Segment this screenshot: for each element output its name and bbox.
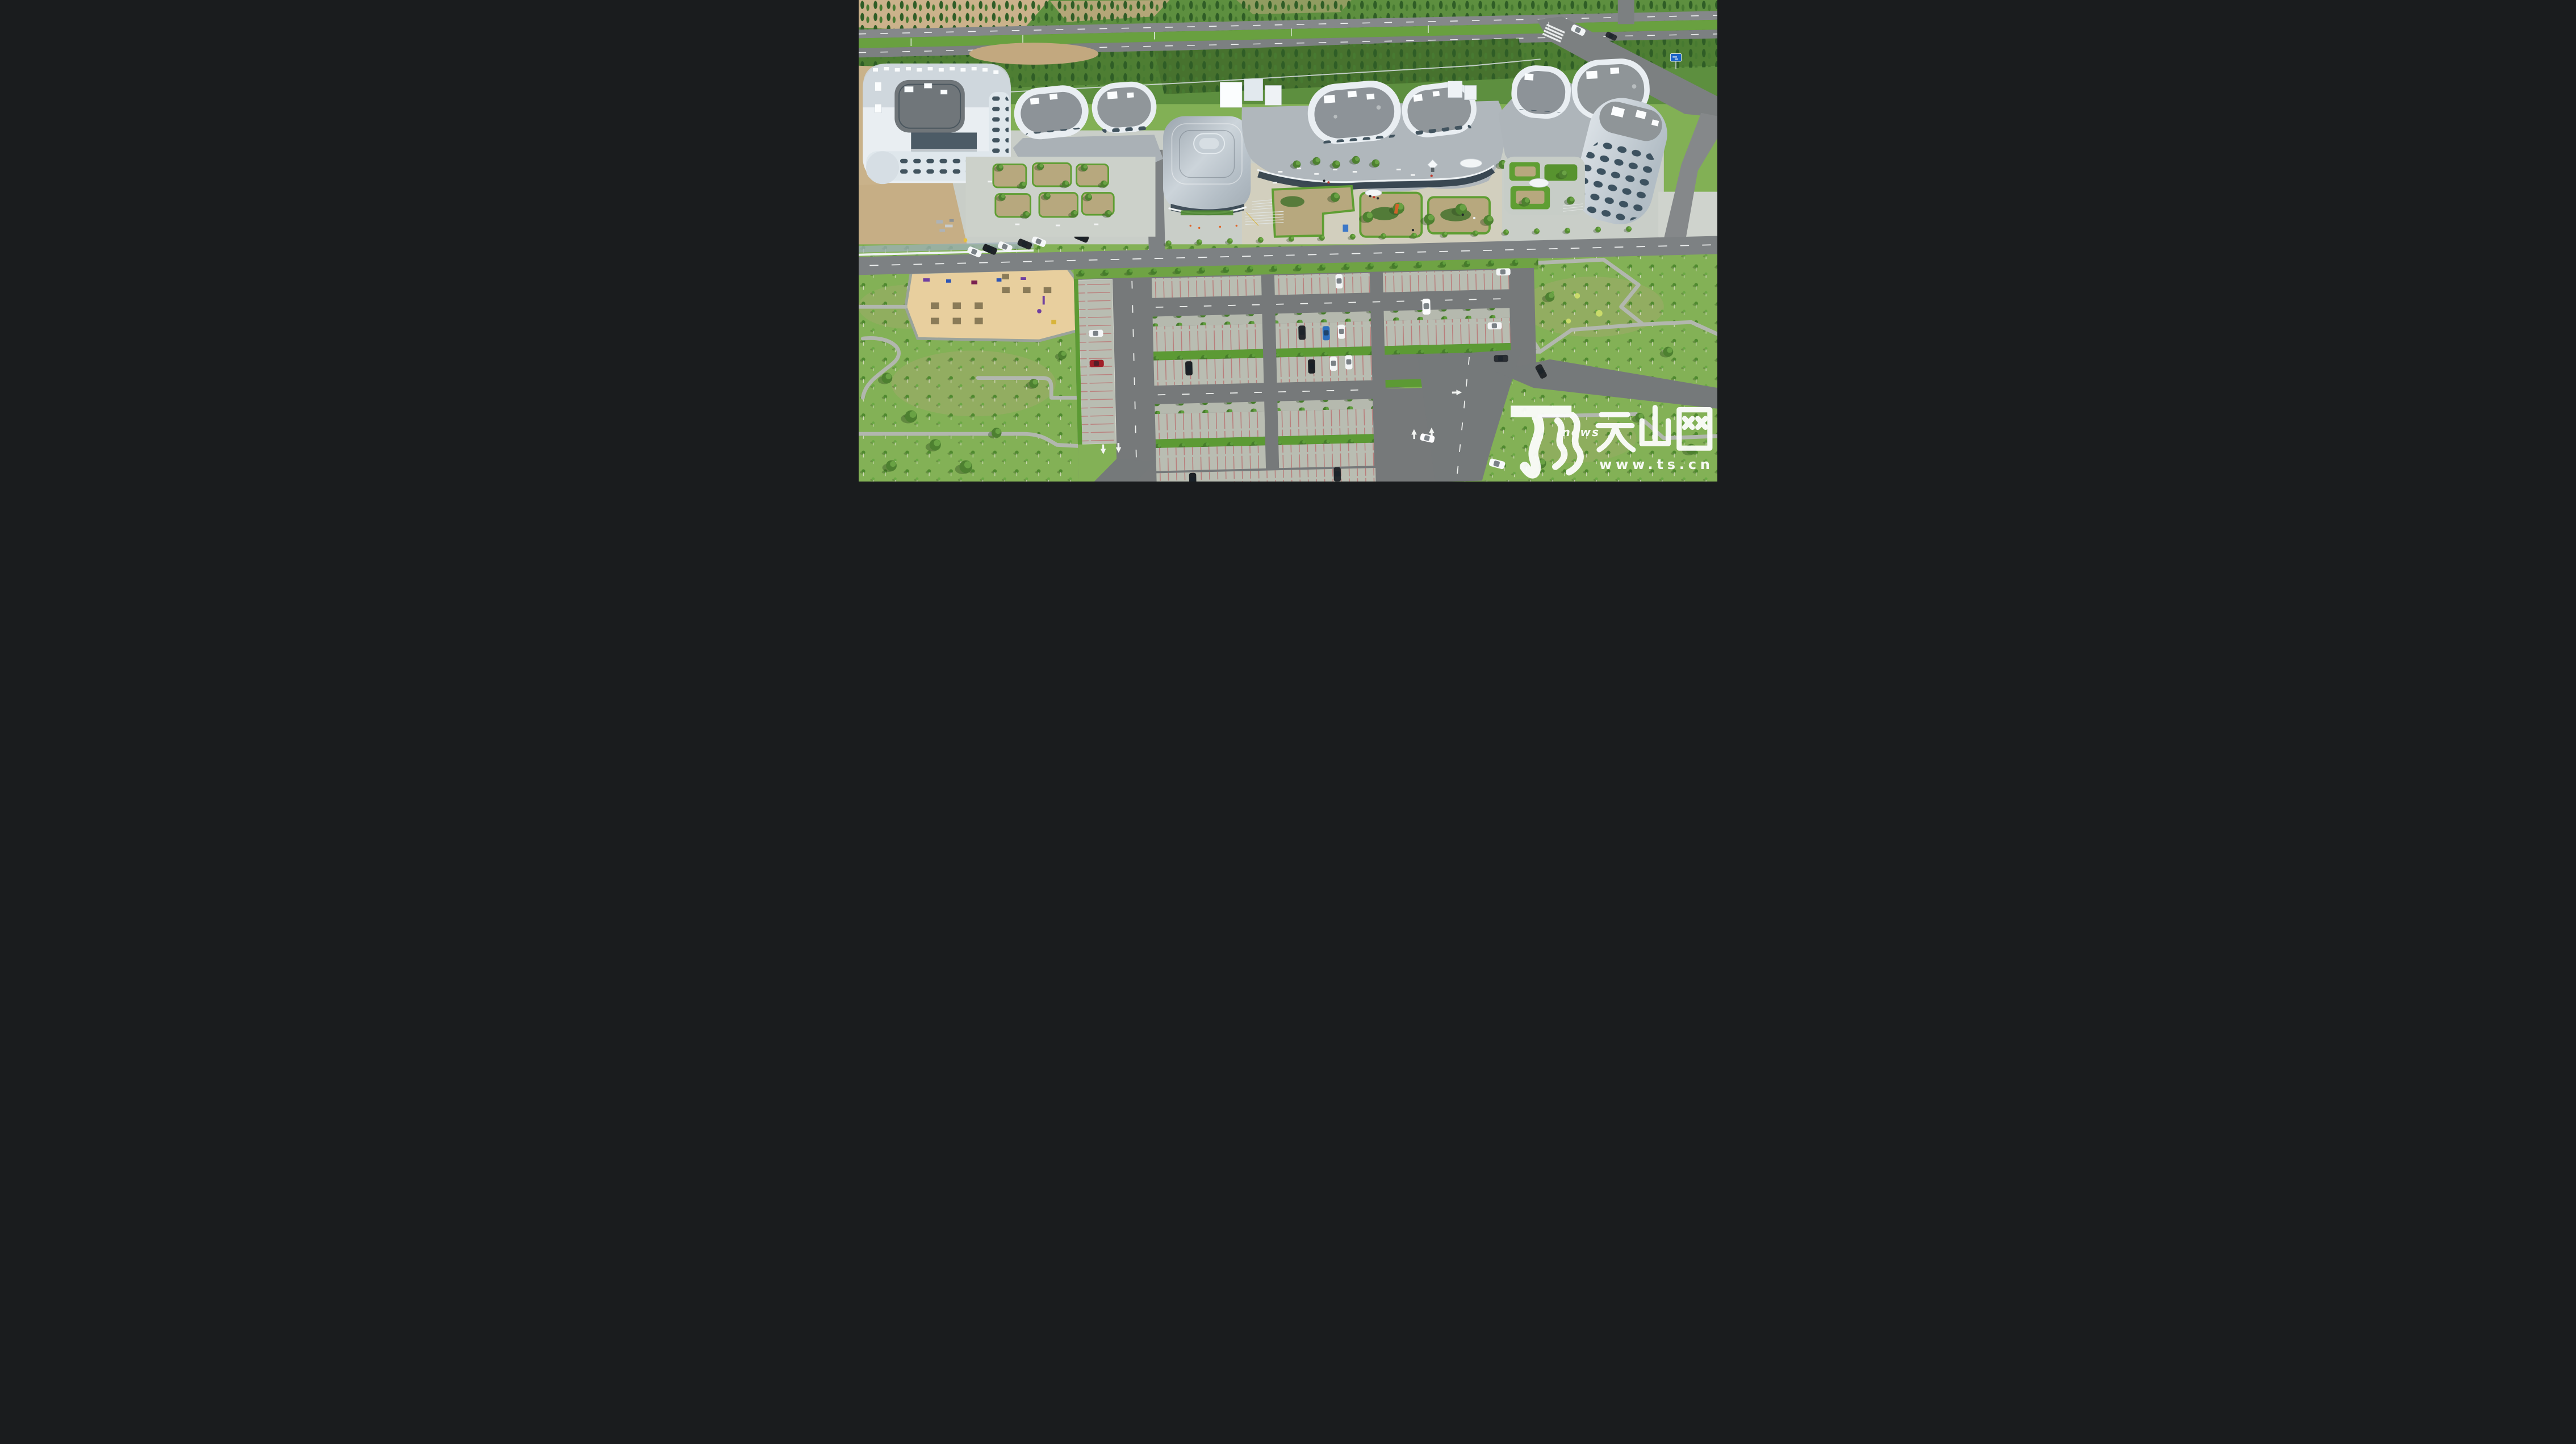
van-white [1422,299,1431,315]
car-black [1298,325,1306,340]
car-white [1338,325,1345,339]
car-white [1487,322,1502,329]
road-north-stub [1618,0,1634,24]
car-black [1189,473,1197,482]
watermark-news-label: news [1562,425,1600,439]
windows [991,95,1009,162]
car-white [1335,274,1343,288]
car-dark [1494,355,1508,362]
aerial-photo-canvas: news 天山网 www.ts.cn [859,0,1717,482]
car-blue [1323,326,1330,340]
dirt-lot-west [859,181,967,248]
watermark-site-url: www.ts.cn [1599,457,1714,472]
car-red [1089,360,1103,367]
aerial-photo-tianshan-campus: news 天山网 www.ts.cn [859,0,1717,482]
atrium-glass [911,132,977,151]
west-courtyard [966,157,1156,237]
sunken-garden [1504,157,1585,215]
shade-canopy [1365,190,1382,196]
dirt-mound [969,43,1099,65]
shade-canopy [1529,179,1549,187]
corner-cylinder [866,151,899,184]
shade-canopy [1460,159,1482,168]
car-white [1496,268,1510,275]
car-white [1089,329,1103,337]
entry-garden [1181,210,1233,215]
car-black [1333,467,1341,482]
blue-board [1343,225,1348,232]
playground [906,269,1080,341]
car-white [1330,357,1337,371]
car-white [1345,355,1352,369]
car-black [1185,361,1193,375]
car-black [1308,359,1315,374]
